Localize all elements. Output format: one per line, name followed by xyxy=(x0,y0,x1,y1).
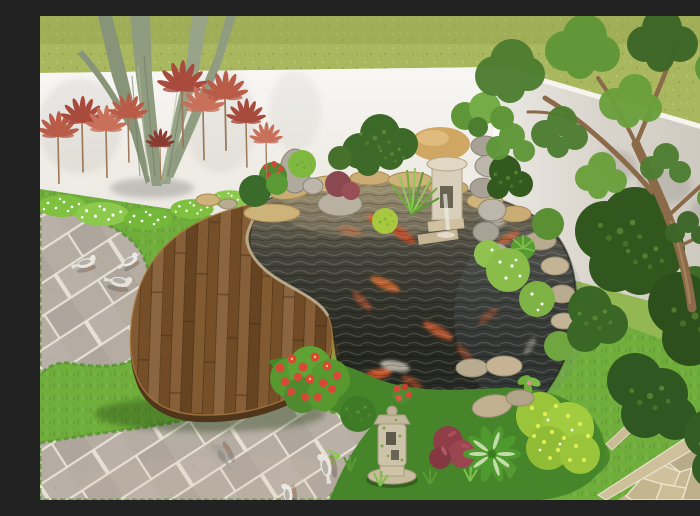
garden-render-scene: Aerial 3D rendering of a backyard corner… xyxy=(40,16,700,500)
